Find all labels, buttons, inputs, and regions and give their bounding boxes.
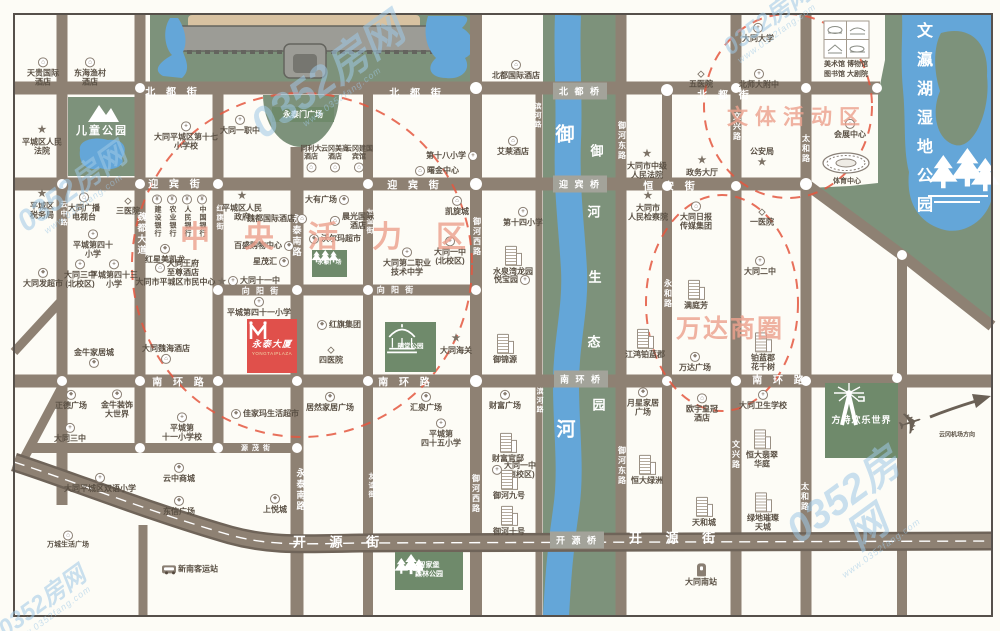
watermark-text: 0352房网	[0, 561, 91, 631]
watermark-text: 0352房网	[718, 0, 816, 61]
watermark-layer: 0352房网www.0352fang.com0352房网www.0352fang…	[0, 0, 1000, 631]
watermark-text: 0352房网	[11, 137, 133, 238]
watermark-url: www.0352fang.com	[733, 0, 820, 67]
watermark-text: 0352房网	[241, 5, 412, 147]
watermark-text: 0352房网	[778, 440, 908, 558]
map-canvas: ✈ 北 都 街北 都 街北 都 街迎 宾 街迎 宾 街恒 安 街向 阳 街向 阳…	[0, 0, 1000, 631]
watermark: 0352房网www.0352fang.com	[243, 7, 417, 153]
watermark: 0352房网www.0352fang.com	[0, 563, 96, 631]
watermark-url: www.0352fang.com	[8, 582, 95, 631]
watermark: 0352房网www.0352fang.com	[774, 438, 941, 593]
watermark: 0352房网www.0352fang.com	[719, 0, 820, 67]
watermark-url: www.0352fang.com	[30, 163, 138, 245]
watermark-url: www.0352fang.com	[268, 41, 417, 153]
watermark: 0352房网www.0352fang.com	[12, 139, 137, 245]
watermark-url: www.0352fang.com	[821, 503, 941, 594]
